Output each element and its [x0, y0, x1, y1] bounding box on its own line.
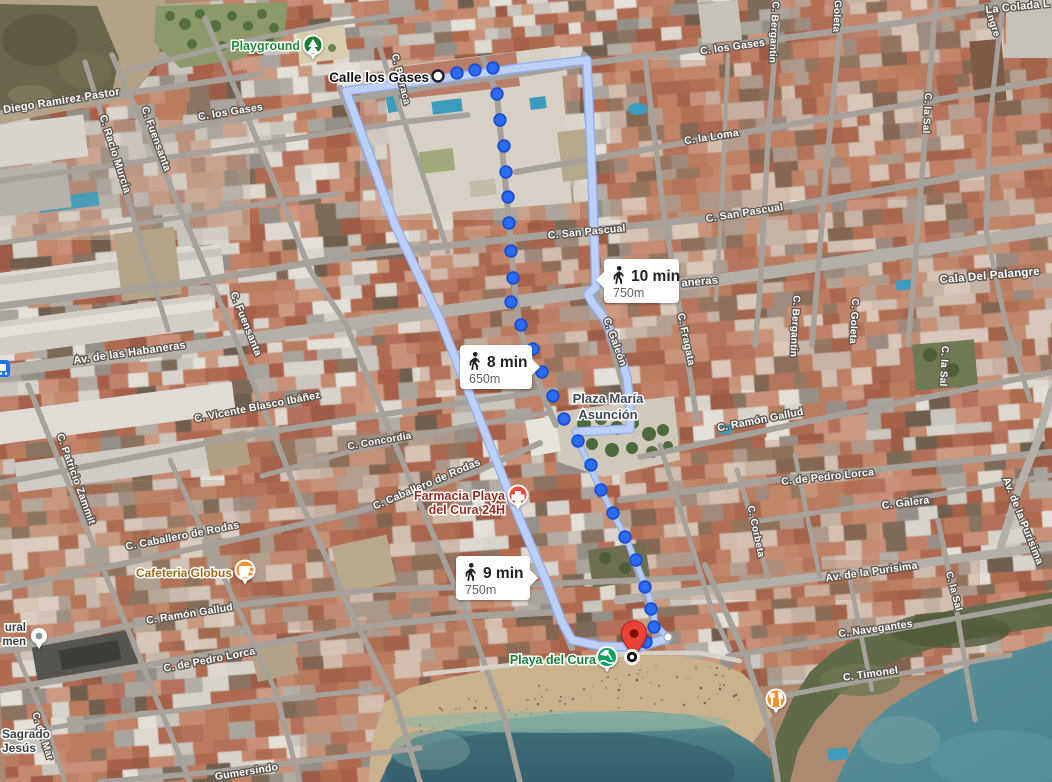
svg-text:Goleta: Goleta	[830, 0, 843, 33]
svg-text:ural: ural	[5, 622, 26, 634]
svg-text:Sagrado: Sagrado	[2, 727, 50, 741]
svg-text:Jesús: Jesús	[2, 741, 36, 755]
svg-text:Plaza María: Plaza María	[573, 391, 645, 406]
svg-text:Calle los Gases: Calle los Gases	[329, 70, 429, 85]
svg-text:8 min: 8 min	[487, 354, 527, 371]
svg-text:10 min: 10 min	[631, 268, 680, 285]
svg-text:650m: 650m	[469, 372, 500, 386]
svg-text:del Cura 24H: del Cura 24H	[429, 503, 505, 517]
svg-text:men: men	[2, 636, 26, 648]
svg-text:Asunción: Asunción	[578, 407, 637, 422]
svg-text:Playground: Playground	[231, 39, 300, 53]
svg-text:C. la Sal: C. la Sal	[937, 346, 950, 387]
svg-text:C. la Sal: C. la Sal	[920, 93, 933, 134]
svg-text:750m: 750m	[465, 583, 496, 597]
svg-text:750m: 750m	[613, 286, 644, 300]
svg-text:9 min: 9 min	[483, 565, 523, 582]
svg-text:Cafeteria Globus: Cafeteria Globus	[136, 566, 232, 580]
svg-text:Farmacia Playa: Farmacia Playa	[414, 489, 506, 503]
svg-text:Playa del Cura: Playa del Cura	[510, 653, 597, 667]
